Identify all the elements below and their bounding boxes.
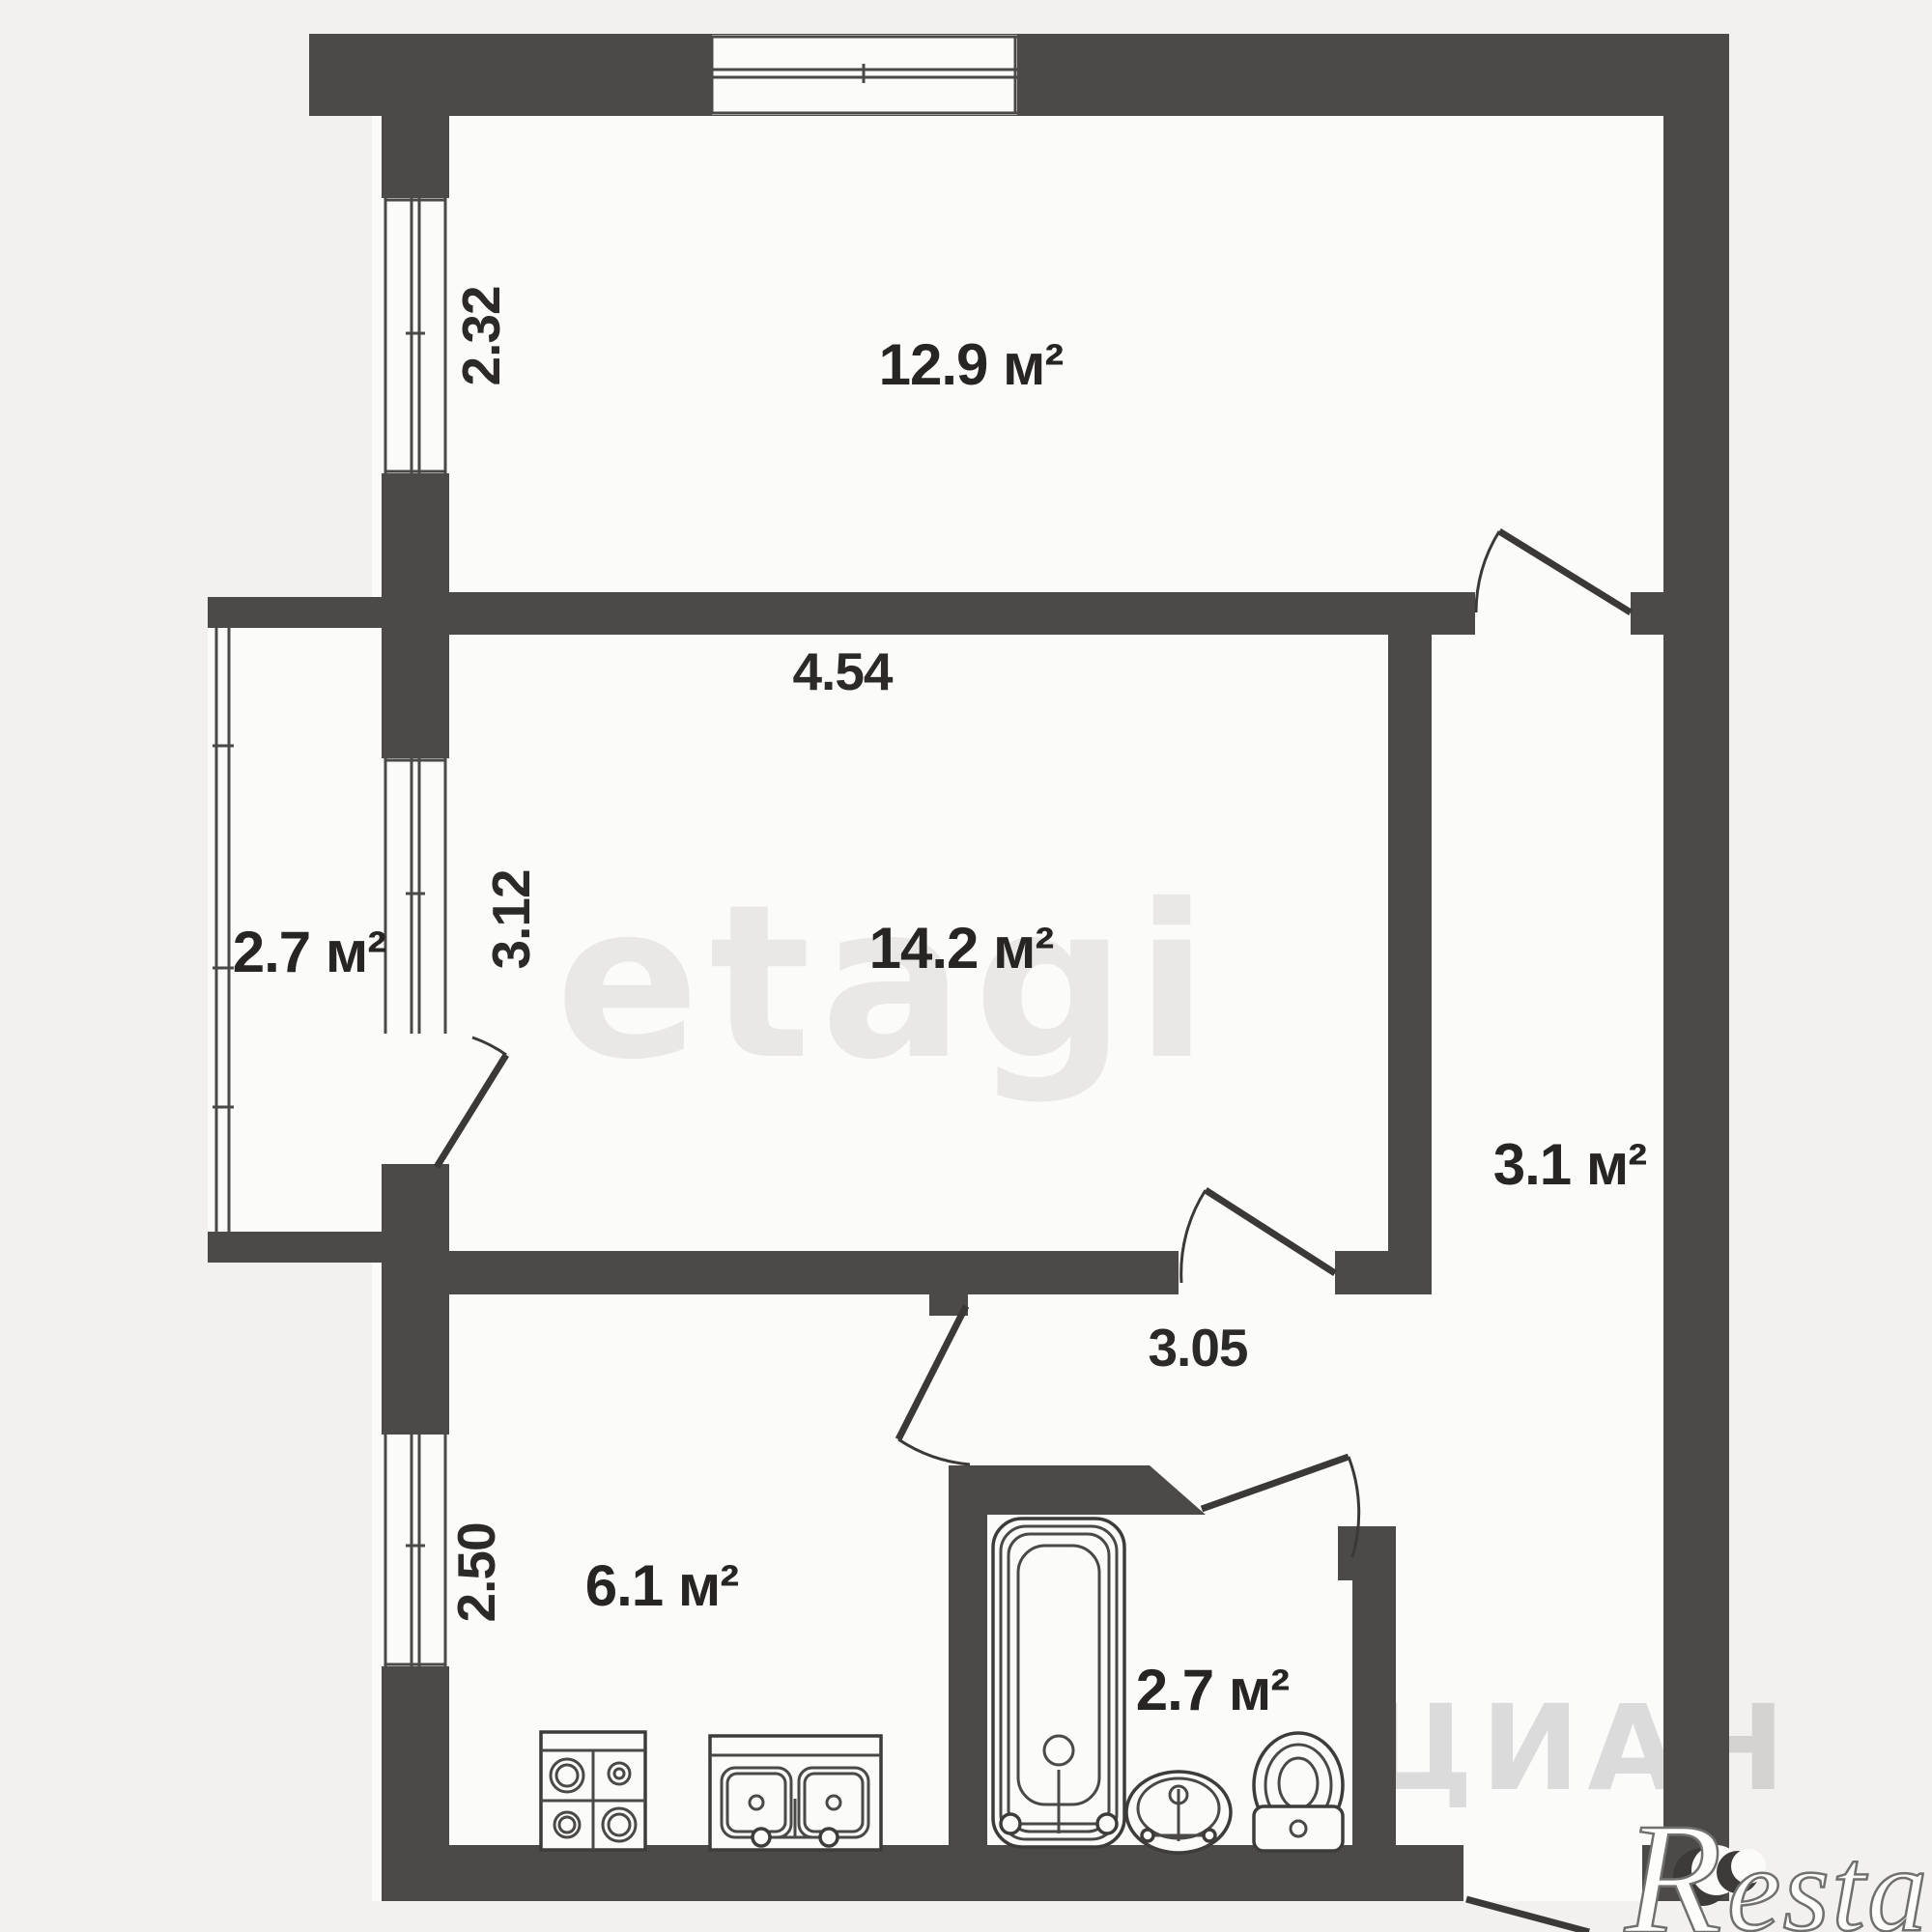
balcony-wall-top	[208, 597, 382, 628]
kitchen-sink	[710, 1736, 881, 1850]
dim-454: 4.54	[792, 641, 893, 701]
label-bedroom: 14.2 м²	[869, 916, 1054, 980]
dim-250: 2.50	[446, 1522, 506, 1622]
wall-left-seg1	[382, 116, 449, 198]
window-living-aperture	[383, 198, 448, 473]
label-hallway: 3.1 м²	[1493, 1132, 1646, 1197]
floor-plan-image: ЦИАН etagi	[0, 0, 1932, 1932]
window-kitchen-aperture	[383, 1435, 448, 1666]
door-entrance	[1466, 1899, 1589, 1932]
stove	[541, 1732, 645, 1850]
wall-left-seg2	[382, 473, 449, 758]
dim-312: 3.12	[481, 869, 541, 969]
floor-plan-svg: ЦИАН etagi	[0, 0, 1932, 1932]
wall-left-seg3	[382, 1164, 449, 1435]
label-balcony: 2.7 м²	[233, 920, 385, 984]
dim-232: 2.32	[451, 286, 511, 385]
washbasin	[1126, 1772, 1231, 1853]
window-top	[712, 35, 1017, 115]
toilet	[1254, 1733, 1343, 1851]
restate-text: estate	[1727, 1824, 1932, 1932]
wall-bottom-left	[382, 1845, 1463, 1901]
washbasin-handle-left	[1142, 1830, 1153, 1841]
wall-top	[309, 34, 1729, 116]
window-kitchen	[383, 1435, 448, 1666]
wall-living-bottom	[440, 592, 1475, 635]
kitchen-sink-handle-left	[753, 1829, 770, 1846]
bathtub-handle-left	[1001, 1814, 1020, 1833]
wall-living-bottom-stub	[1631, 592, 1663, 635]
toilet-tank	[1254, 1806, 1343, 1851]
balcony-wall-bottom	[208, 1232, 382, 1263]
bathtub	[993, 1519, 1124, 1847]
label-kitchen: 6.1 м²	[585, 1553, 738, 1618]
wall-right	[1663, 34, 1729, 1901]
bathtub-handle-right	[1097, 1814, 1117, 1833]
wall-bathroom-left	[949, 1465, 987, 1901]
kitchen-sink-handle-right	[820, 1829, 838, 1846]
label-living-room: 12.9 м²	[879, 332, 1064, 397]
window-bedroom-aperture	[383, 758, 448, 1034]
door-entrance-leaf	[1466, 1899, 1589, 1932]
wall-bedroom-right-foot	[1335, 1251, 1388, 1294]
dim-305: 3.05	[1148, 1318, 1247, 1378]
etagi-watermark: etagi	[555, 859, 1218, 1106]
label-bathroom: 2.7 м²	[1136, 1658, 1289, 1722]
window-bedroom	[383, 758, 448, 1034]
wall-left-seg4	[382, 1666, 449, 1845]
restate-initial: R	[1624, 1790, 1722, 1932]
window-living	[383, 198, 448, 473]
wall-bedroom-bottom	[440, 1251, 1179, 1294]
wall-bedroom-right	[1388, 635, 1432, 1294]
washbasin-handle-right	[1204, 1830, 1215, 1841]
